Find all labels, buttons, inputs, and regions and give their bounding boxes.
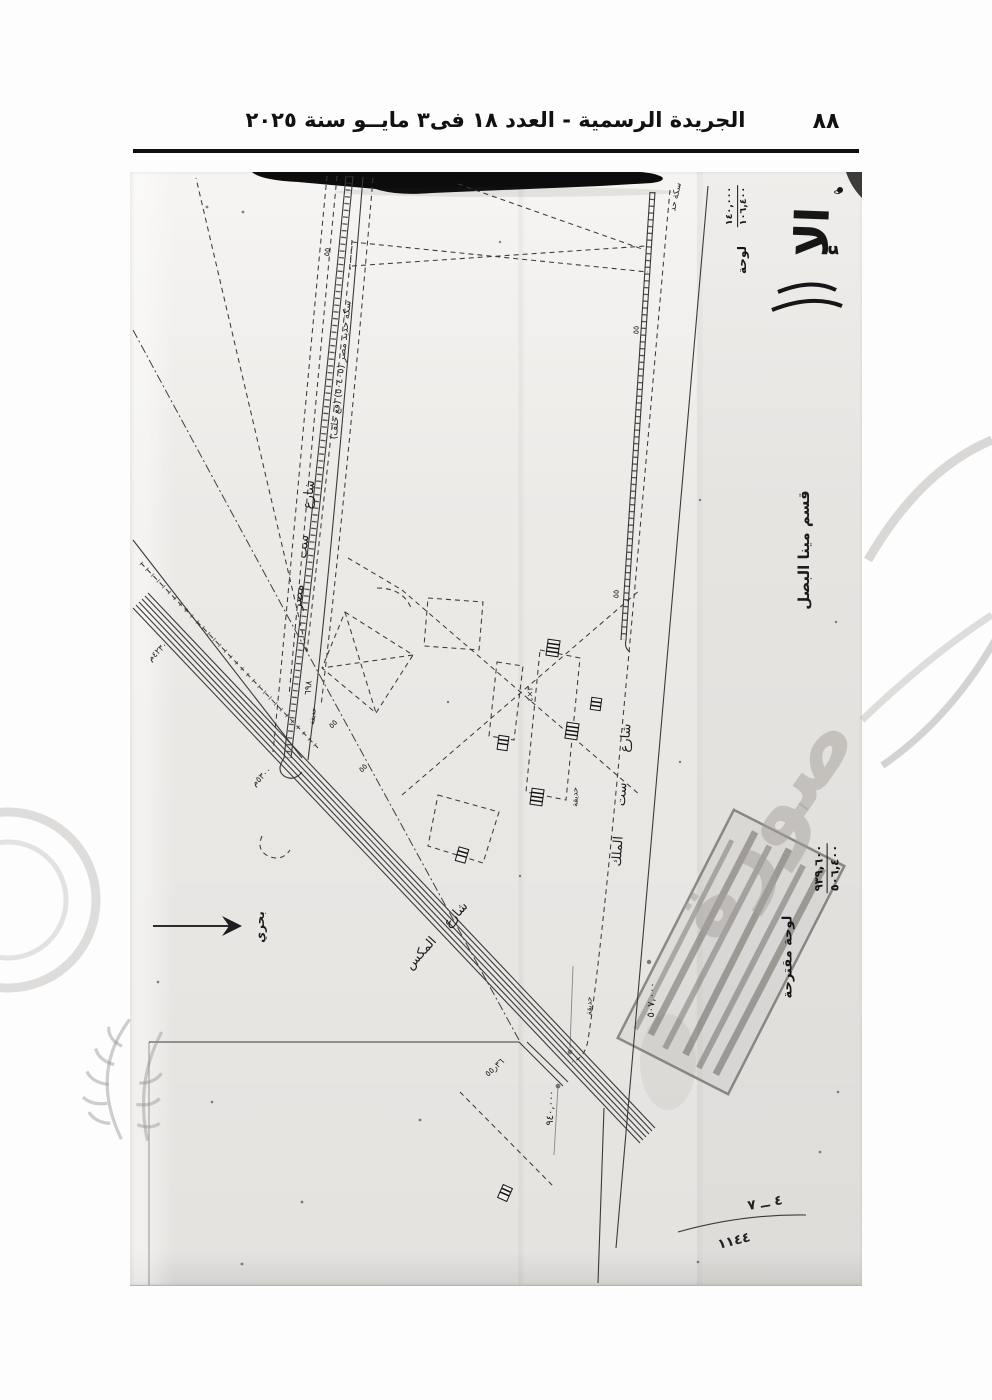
page-title: الجريدة الرسمية - العدد ١٨ فى٣ مايــو سن… xyxy=(130,108,861,132)
scan-edge-artifact xyxy=(252,172,862,198)
gazette-page: الجريدة الرسمية - العدد ١٨ فى٣ مايــو سن… xyxy=(0,0,992,1400)
bottom-street-junction xyxy=(149,960,651,1285)
railway-track-right xyxy=(621,192,655,652)
parcel-outlines xyxy=(322,588,580,863)
almax-band xyxy=(133,540,655,1143)
building-marks xyxy=(455,639,602,1201)
north-arrow xyxy=(153,916,242,936)
railway-street xyxy=(260,176,373,858)
page-number: ٨٨ xyxy=(800,109,852,134)
map-drawing xyxy=(130,172,862,1285)
watermark-circle xyxy=(0,812,96,988)
reference-fraction-bar xyxy=(678,1215,806,1232)
stamp-smudge xyxy=(640,1014,696,1110)
corner-calligraphy-flourish xyxy=(772,187,843,310)
header-rule xyxy=(133,149,859,153)
boundary-dashes xyxy=(133,178,519,1040)
mid-parcel-truss xyxy=(348,558,640,795)
top-parcel-truss xyxy=(350,184,648,272)
